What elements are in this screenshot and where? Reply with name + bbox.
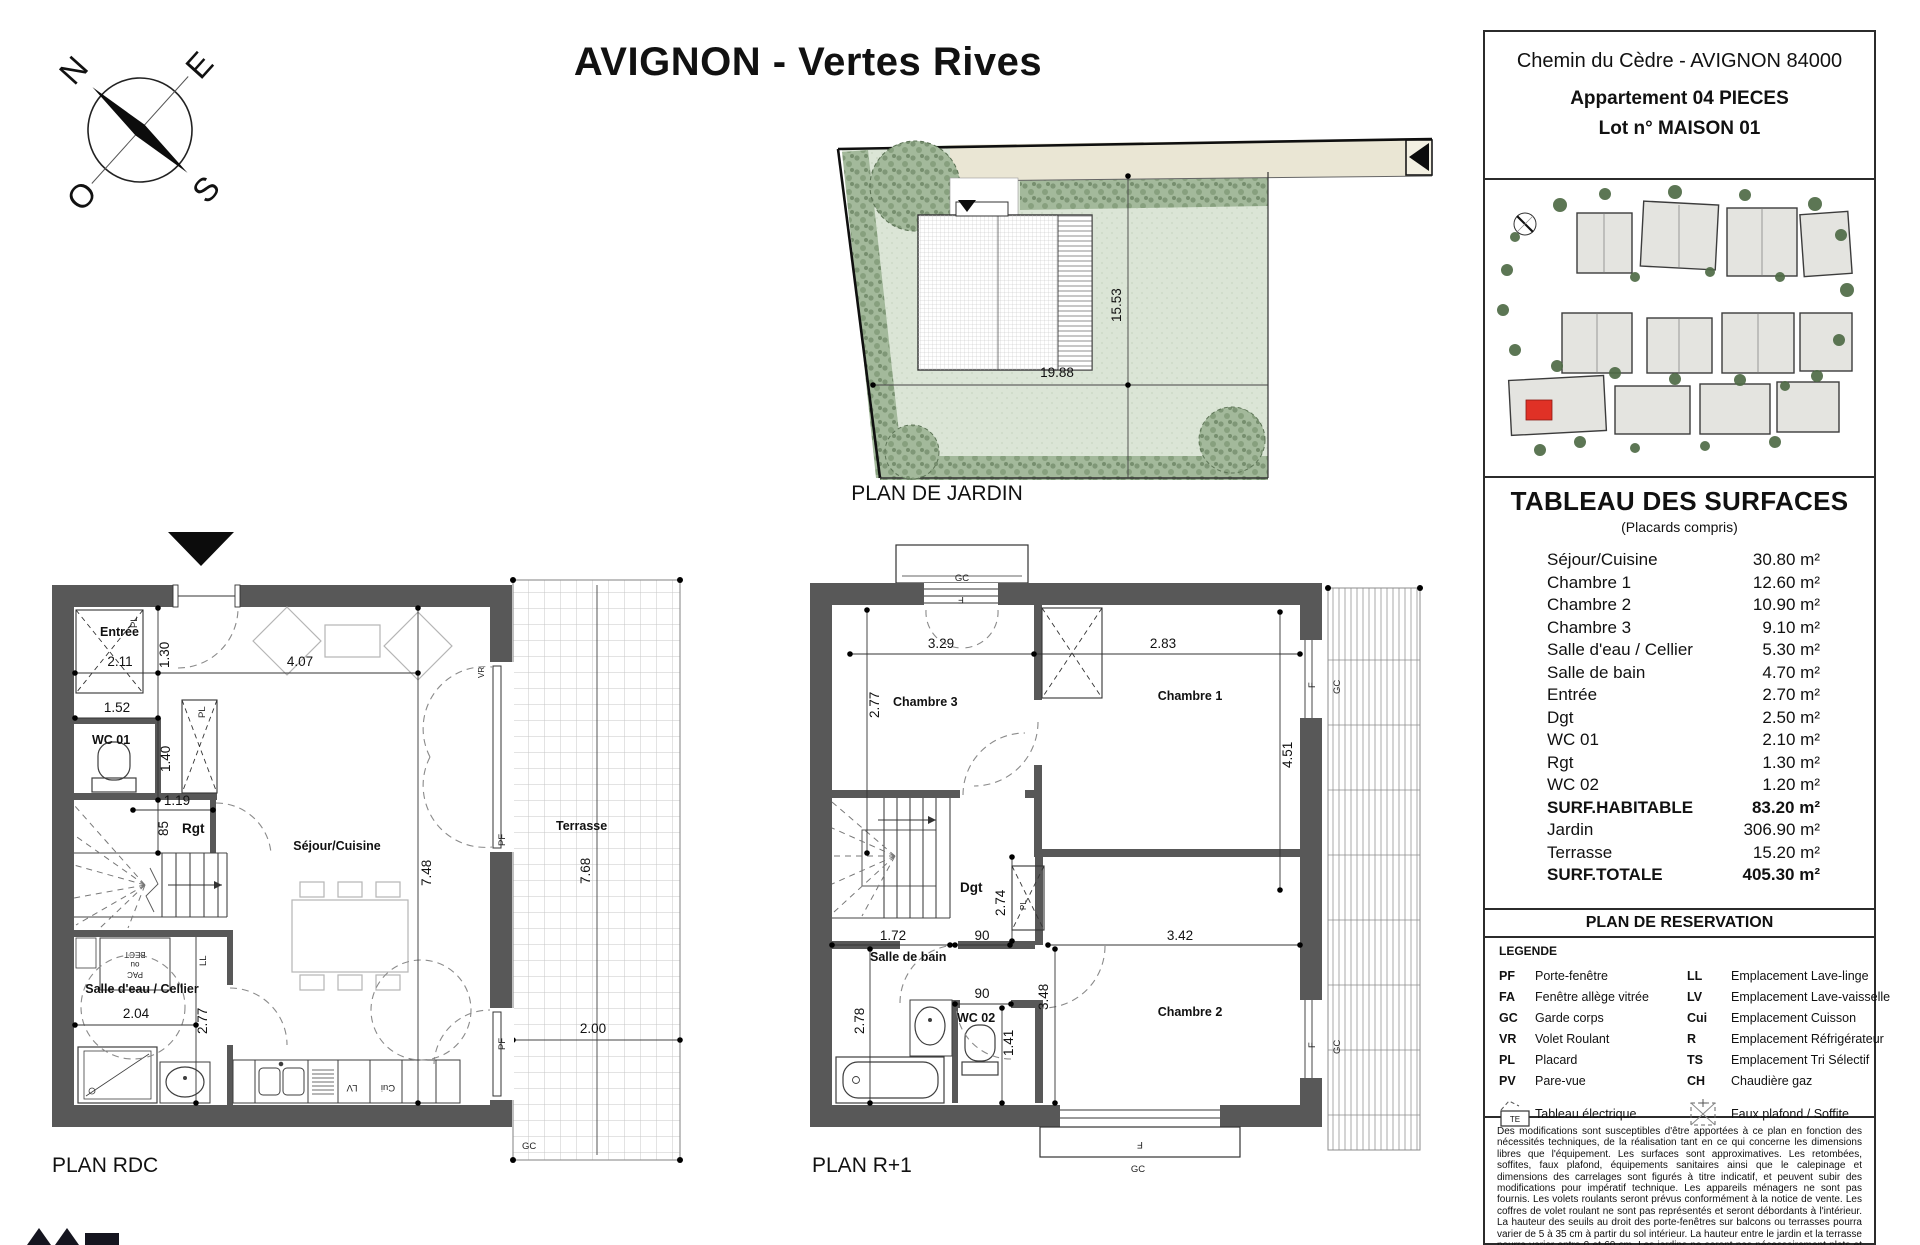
r1-wc02-label: WC 02 <box>957 1011 995 1025</box>
rdc-pf-tag: PF <box>497 834 508 846</box>
rdc-salle-eau-label: Salle d'eau / Cellier <box>85 982 199 996</box>
legend-title: LEGENDE <box>1499 944 1860 958</box>
r1-gc-strip2: GC <box>1332 1040 1343 1054</box>
svg-text:ou: ou <box>131 960 140 969</box>
table-row-habitable: SURF.HABITABLE83.20 m² <box>1547 797 1820 820</box>
rdc-entrance-arrow-icon <box>168 532 234 566</box>
rdc-dim-140: 1.40 <box>158 746 173 772</box>
rdc-cui-tag: Cui <box>381 1082 395 1093</box>
rdc-entree-label: Entrée <box>100 625 139 639</box>
r1-ch2-label: Chambre 2 <box>1158 1005 1223 1019</box>
r1-dim-451: 4.51 <box>1280 742 1295 768</box>
rdc-dim-768: 7.68 <box>578 858 593 884</box>
table-row: Salle de bain4.70 m² <box>1547 662 1820 685</box>
r1-caption: PLAN R+1 <box>812 1154 912 1177</box>
table-row: Séjour/Cuisine30.80 m² <box>1547 549 1820 572</box>
r1-gc-top: GC <box>955 573 969 584</box>
rdc-dim-277: 2.77 <box>195 1008 210 1034</box>
compass-needle-icon <box>88 82 192 178</box>
r1-f-right2: F <box>1307 1042 1318 1048</box>
r1-roof-strip: GC GC <box>1325 585 1423 1150</box>
bush <box>1199 407 1265 473</box>
site-plan-map <box>1485 180 1874 474</box>
bush <box>885 425 939 479</box>
table-row: Chambre 112.60 m² <box>1547 572 1820 595</box>
rdc-furniture <box>253 607 452 990</box>
r1-ch3-label: Chambre 3 <box>893 695 958 709</box>
apartment-type: Appartement 04 PIECES <box>1485 88 1874 110</box>
rdc-lv-tag: LV <box>346 1082 358 1093</box>
r1-dim-283: 2.83 <box>1150 636 1176 651</box>
rdc-dim-85: 85 <box>156 821 171 836</box>
road <box>950 138 1432 181</box>
r1-dim-342: 3.42 <box>1167 928 1193 943</box>
surface-table-subtitle: (Placards compris) <box>1485 519 1874 535</box>
site-buildings <box>1509 201 1852 435</box>
r1-gc-strip1: GC <box>1332 680 1343 694</box>
rdc-dim-119: 1.19 <box>164 793 190 808</box>
partial-logo <box>25 1228 165 1245</box>
r1-dim-90b: 90 <box>974 986 989 1001</box>
r1-dim-348: 3.48 <box>1036 984 1051 1010</box>
rdc-dim-130: 1.30 <box>157 642 172 668</box>
legend-grid: PFPorte-fenêtre LLEmplacement Lave-linge… <box>1499 966 1860 1092</box>
table-row: Entrée2.70 m² <box>1547 684 1820 707</box>
svg-text:PAC: PAC <box>127 970 143 979</box>
compass-o: O <box>59 174 104 218</box>
rdc-pac-label: BECT ou PAC <box>124 950 145 979</box>
r1-door-swings <box>900 610 1105 1059</box>
r1-gc-bottom: GC <box>1131 1164 1145 1175</box>
table-row: Chambre 39.10 m² <box>1547 617 1820 640</box>
rdc-terrace: Terrasse 7.68 2.00 GC <box>510 577 683 1163</box>
rdc-rgt-label: Rgt <box>182 821 205 836</box>
r1-dim-274: 2.74 <box>993 889 1008 916</box>
rdc-caption: PLAN RDC <box>52 1154 158 1177</box>
table-row: Salle d'eau / Cellier5.30 m² <box>1547 639 1820 662</box>
info-panel: Chemin du Cèdre - AVIGNON 84000 Appartem… <box>1483 30 1876 1245</box>
compass-n: N <box>52 49 95 91</box>
rdc-pl-tag2: PL <box>197 706 208 718</box>
r1-dim-90a: 90 <box>974 928 989 943</box>
compass-e: E <box>178 44 220 85</box>
rdc-closets <box>76 610 217 793</box>
r1-dgt-label: Dgt <box>960 880 983 895</box>
site-plan <box>1485 178 1874 476</box>
table-row: Chambre 210.90 m² <box>1547 594 1820 617</box>
reservation-title: PLAN DE RESERVATION <box>1485 908 1874 938</box>
site-highlight-unit <box>1526 400 1552 420</box>
garden-dim-height: 15.53 <box>1109 288 1124 322</box>
rdc-dim-407: 4.07 <box>287 654 313 669</box>
disclaimer-text: Des modifications sont susceptibles d'êt… <box>1485 1116 1874 1245</box>
r1-closets <box>1012 608 1102 930</box>
address: Chemin du Cèdre - AVIGNON 84000 <box>1485 50 1874 73</box>
rdc-dim-211: 2.11 <box>107 654 132 669</box>
r1-dim-172: 1.72 <box>880 928 906 943</box>
house-footprint <box>918 200 1092 370</box>
rdc-dim-204: 2.04 <box>123 1006 150 1021</box>
garden-dim-width: 19.88 <box>1040 365 1074 380</box>
r1-f-right1: F <box>1307 682 1318 688</box>
compass-group: N E S O <box>20 10 270 250</box>
rdc-wc01-label: WC 01 <box>92 733 130 747</box>
site-compass-icon <box>1514 213 1536 235</box>
rdc-dim-152: 1.52 <box>104 700 130 715</box>
surface-table: TABLEAU DES SURFACES (Placards compris) … <box>1485 476 1874 908</box>
garden-plot: 15.53 19.88 PLAN DE JARDIN <box>838 138 1432 505</box>
r1-sdb-label: Salle de bain <box>870 950 946 964</box>
compass-rose: N E S O <box>20 10 270 250</box>
floorplan-sheet: AVIGNON - Vertes Rives N E S O <box>0 0 1920 1245</box>
r1-dim-329: 3.29 <box>928 636 954 651</box>
table-row: Rgt1.30 m² <box>1547 752 1820 775</box>
r1-dim-141: 1.41 <box>1001 1030 1016 1056</box>
table-row: Jardin306.90 m² <box>1547 819 1820 842</box>
rdc-vr-tag: VR <box>477 667 486 678</box>
table-row: WC 012.10 m² <box>1547 729 1820 752</box>
plan-rdc: Terrasse 7.68 2.00 GC <box>30 520 730 1200</box>
compass-s: S <box>185 169 227 210</box>
rdc-dim-748: 7.48 <box>419 860 434 886</box>
r1-ch1-label: Chambre 1 <box>1158 689 1223 703</box>
r1-dim-278: 2.78 <box>852 1008 867 1034</box>
table-row: WC 021.20 m² <box>1547 774 1820 797</box>
soffite-icon <box>1687 1099 1721 1129</box>
surface-table-title: TABLEAU DES SURFACES <box>1485 486 1874 517</box>
r1-stairs <box>832 798 950 918</box>
r1-f-bottom: F <box>1137 1139 1143 1150</box>
r1-dim-277: 2.77 <box>867 692 882 718</box>
r1-f-top: F <box>958 594 964 605</box>
rdc-sejour-label: Séjour/Cuisine <box>293 839 381 853</box>
rdc-terrasse-label: Terrasse <box>556 819 607 833</box>
rdc-dim-200: 2.00 <box>580 1021 606 1036</box>
te-label: Tableau électrique <box>1535 1107 1687 1121</box>
rdc-kitchen <box>233 1060 460 1103</box>
lot-number: Lot n° MAISON 01 <box>1485 118 1874 140</box>
table-row-totale: SURF.TOTALE405.30 m² <box>1547 864 1820 887</box>
legend: LEGENDE PFPorte-fenêtre LLEmplacement La… <box>1485 938 1874 1116</box>
rdc-dim-dots <box>72 605 421 1106</box>
rdc-dim-lines <box>75 608 418 1103</box>
r1-partitions <box>832 605 1300 1103</box>
rdc-pf-tag2: PF <box>497 1038 508 1050</box>
soffite-label: Faux plafond / Soffite <box>1731 1107 1860 1121</box>
plan-r1: GC GC GC F F F <box>790 530 1440 1190</box>
page-title: AVIGNON - Vertes Rives <box>574 40 1042 85</box>
garden-plan: 15.53 19.88 PLAN DE JARDIN <box>820 85 1480 515</box>
rdc-gc-tag: GC <box>522 1141 536 1152</box>
table-row: Terrasse15.20 m² <box>1547 842 1820 865</box>
garden-plan-caption: PLAN DE JARDIN <box>851 482 1023 505</box>
rdc-ll-tag: LL <box>198 955 209 966</box>
r1-pl-tag: PL <box>1019 900 1028 910</box>
panel-header: Chemin du Cèdre - AVIGNON 84000 Appartem… <box>1485 50 1874 178</box>
table-row: Dgt2.50 m² <box>1547 707 1820 730</box>
svg-text:TE: TE <box>1510 1115 1520 1124</box>
surface-rows: Séjour/Cuisine30.80 m² Chambre 112.60 m²… <box>1547 549 1820 887</box>
